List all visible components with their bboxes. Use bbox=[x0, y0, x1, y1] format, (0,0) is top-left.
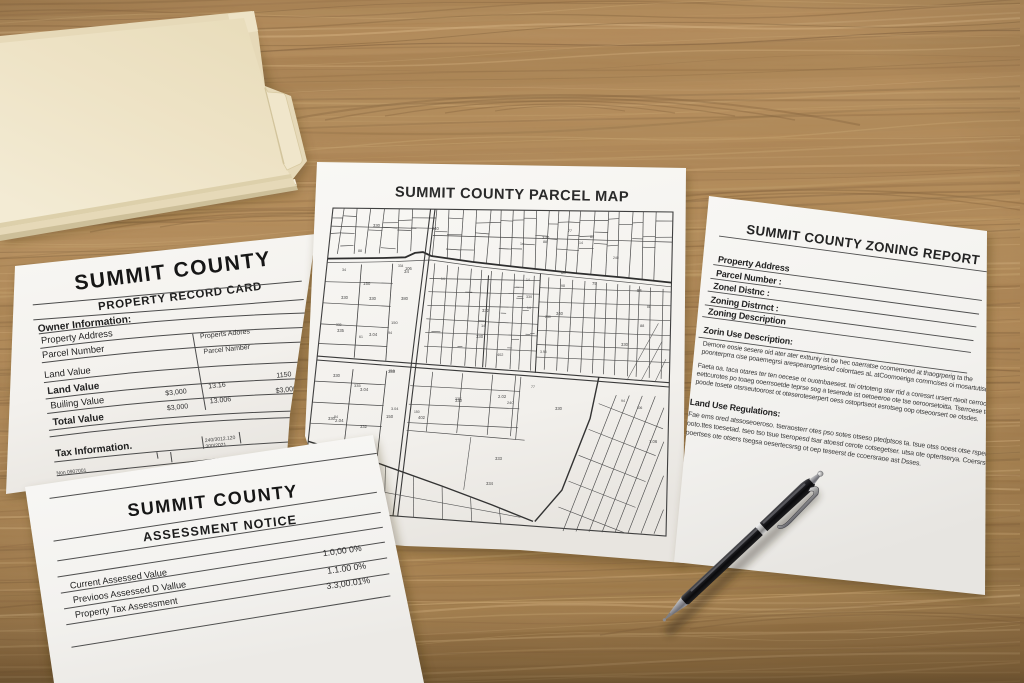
svg-text:98: 98 bbox=[561, 284, 565, 288]
svg-text:3.04: 3.04 bbox=[369, 332, 378, 337]
svg-text:34: 34 bbox=[342, 268, 346, 272]
svg-text:380: 380 bbox=[401, 296, 409, 301]
svg-text:240: 240 bbox=[432, 226, 440, 231]
svg-text:402: 402 bbox=[497, 353, 503, 357]
svg-text:106: 106 bbox=[405, 266, 413, 271]
svg-text:14: 14 bbox=[527, 306, 531, 310]
svg-text:340: 340 bbox=[556, 311, 564, 316]
svg-text:230: 230 bbox=[545, 315, 551, 319]
svg-text:88: 88 bbox=[543, 240, 547, 244]
svg-text:332: 332 bbox=[360, 424, 368, 429]
svg-text:330: 330 bbox=[328, 416, 336, 421]
svg-text:77: 77 bbox=[568, 229, 572, 233]
svg-text:1.06: 1.06 bbox=[649, 439, 658, 444]
svg-text:2.02: 2.02 bbox=[498, 394, 507, 399]
svg-text:330: 330 bbox=[333, 373, 341, 378]
svg-text:240: 240 bbox=[613, 256, 619, 260]
svg-text:330: 330 bbox=[542, 235, 550, 240]
svg-text:333: 333 bbox=[495, 456, 503, 461]
svg-text:330: 330 bbox=[373, 223, 381, 228]
svg-text:75: 75 bbox=[592, 281, 597, 286]
svg-text:330: 330 bbox=[621, 342, 629, 347]
svg-text:330: 330 bbox=[455, 398, 463, 403]
svg-text:334: 334 bbox=[486, 481, 494, 486]
svg-text:332: 332 bbox=[482, 308, 490, 313]
svg-text:150: 150 bbox=[363, 281, 371, 286]
svg-text:330: 330 bbox=[555, 406, 563, 411]
svg-text:94: 94 bbox=[621, 399, 625, 403]
svg-text:3.04: 3.04 bbox=[360, 387, 369, 392]
svg-text:333: 333 bbox=[336, 323, 342, 327]
svg-text:3.95: 3.95 bbox=[540, 350, 547, 354]
svg-text:330: 330 bbox=[388, 369, 396, 374]
svg-text:88: 88 bbox=[640, 323, 644, 328]
svg-text:150: 150 bbox=[414, 410, 420, 414]
svg-text:14: 14 bbox=[441, 277, 445, 281]
svg-text:88: 88 bbox=[358, 249, 362, 253]
svg-text:334: 334 bbox=[398, 264, 404, 268]
svg-text:330: 330 bbox=[526, 295, 532, 299]
svg-text:14: 14 bbox=[526, 278, 530, 282]
svg-text:335: 335 bbox=[337, 328, 345, 333]
svg-text:240: 240 bbox=[507, 400, 514, 405]
svg-text:306: 306 bbox=[637, 406, 643, 410]
svg-text:84: 84 bbox=[637, 288, 642, 293]
svg-text:84: 84 bbox=[590, 235, 594, 239]
svg-text:14: 14 bbox=[520, 242, 524, 246]
svg-text:14: 14 bbox=[579, 241, 583, 245]
svg-text:77: 77 bbox=[531, 385, 535, 389]
svg-text:402: 402 bbox=[418, 415, 426, 420]
svg-text:150: 150 bbox=[386, 414, 394, 419]
svg-text:88: 88 bbox=[561, 270, 566, 275]
svg-text:330: 330 bbox=[369, 296, 377, 301]
svg-text:3.04: 3.04 bbox=[391, 407, 398, 411]
svg-text:150: 150 bbox=[391, 320, 398, 325]
svg-text:61: 61 bbox=[359, 335, 363, 339]
svg-text:330: 330 bbox=[341, 295, 349, 300]
svg-text:330: 330 bbox=[476, 334, 484, 339]
svg-text:88: 88 bbox=[647, 305, 651, 309]
svg-text:94: 94 bbox=[388, 331, 392, 335]
